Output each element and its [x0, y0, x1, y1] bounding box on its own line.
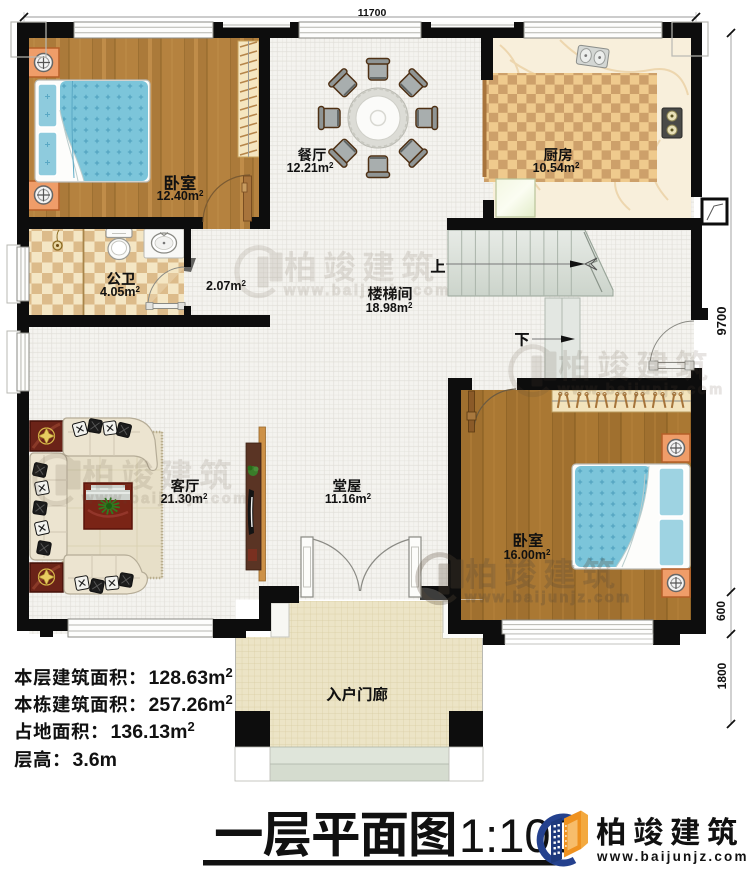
svg-text:18.98m2: 18.98m2 — [366, 301, 413, 315]
svg-text:11700: 11700 — [358, 7, 387, 19]
svg-text:4.05m2: 4.05m2 — [100, 285, 140, 299]
svg-text:12.21m2: 12.21m2 — [287, 161, 334, 175]
svg-text:9700: 9700 — [714, 307, 729, 336]
svg-text:10.54m2: 10.54m2 — [533, 161, 580, 175]
svg-text:1800: 1800 — [715, 662, 729, 689]
svg-text:12.40m2: 12.40m2 — [157, 189, 204, 203]
svg-text:www.baijunjz.com: www.baijunjz.com — [596, 849, 749, 864]
svg-text:136.13m2: 136.13m2 — [111, 719, 195, 743]
svg-text:128.63m2: 128.63m2 — [149, 665, 233, 689]
svg-text:257.26m2: 257.26m2 — [149, 692, 233, 716]
svg-text:11.16m2: 11.16m2 — [325, 492, 372, 506]
svg-text:600: 600 — [714, 601, 728, 621]
svg-text:3.6m: 3.6m — [73, 749, 117, 771]
